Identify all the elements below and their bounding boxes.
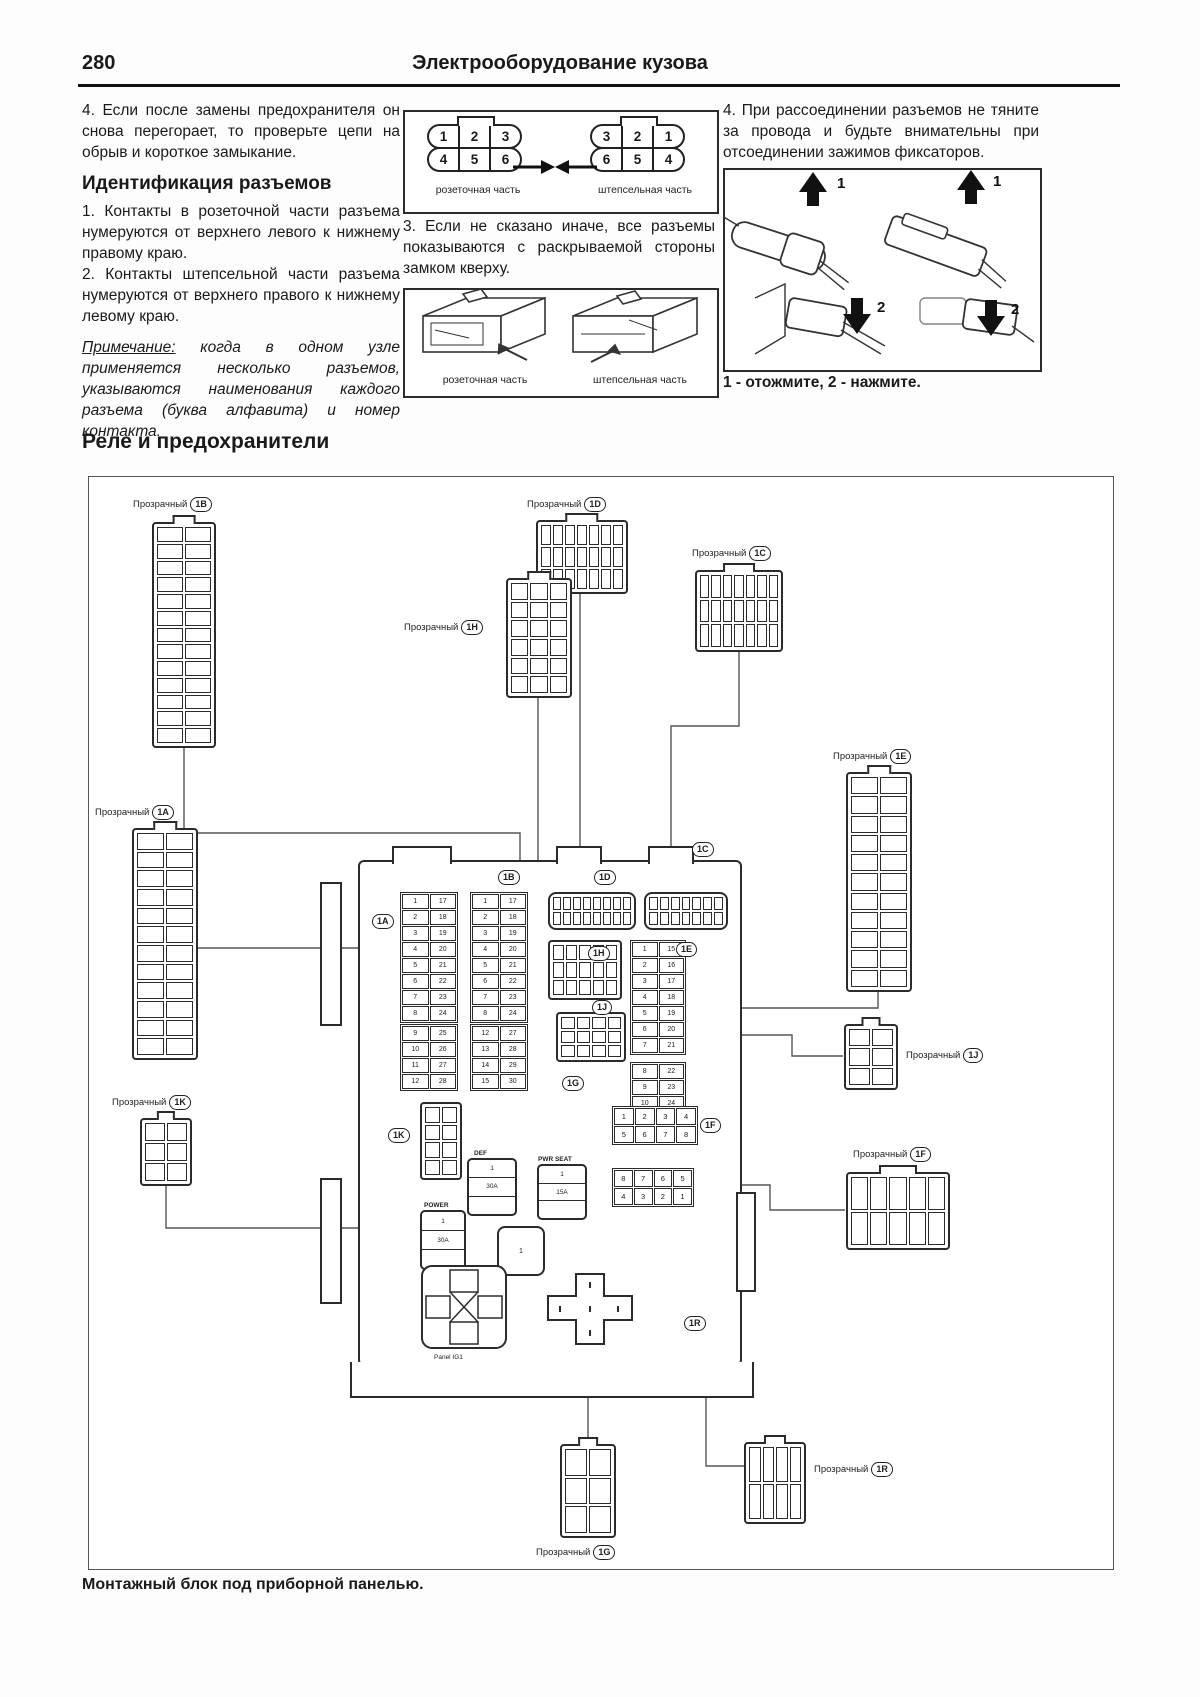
socket-oval-1j: 1J [592, 1000, 612, 1015]
fusebox-bracket-right [736, 1192, 756, 1292]
socket-oval-1k: 1K [388, 1128, 410, 1143]
socket-oval-1h: 1H [588, 946, 610, 961]
socket-oval-1g: 1G [562, 1076, 584, 1091]
plug-arrow-icon [555, 160, 597, 174]
socket-oval-1r: 1R [684, 1316, 706, 1331]
socket-row-1: 123 [427, 124, 522, 149]
relay-power-label: POWER [424, 1202, 449, 1209]
numbered-grid-r: 87654321 [612, 1168, 694, 1207]
connector-1d-label: Прозрачный1D [527, 497, 606, 512]
fusebox-socket-strip-1d [548, 892, 636, 930]
plug-view-caption: штепсельная часть [570, 374, 710, 386]
socket-oval-1e: 1E [676, 942, 697, 957]
connector-1b [152, 522, 216, 748]
fusebox-bracket-left-1 [320, 882, 342, 1026]
plug-row-2: 654 [590, 147, 685, 172]
socket-arrow-icon [513, 160, 555, 174]
socket-caption: розеточная часть [413, 184, 543, 196]
fuse-block-a1: 117218319420521622723824 [400, 892, 458, 1023]
fuse-block-a2: 925102611271228 [400, 1024, 458, 1091]
svg-text:1: 1 [993, 173, 1001, 190]
connector-1j-label: Прозрачный1J [906, 1048, 983, 1063]
connector-id-heading: Идентификация разъемов [82, 173, 400, 195]
panel-ig1-label: Panel IG1 [434, 1354, 463, 1361]
note-label: Примечание: [82, 339, 176, 356]
intro-item-4-left: 4. Если после замены предохранителя он с… [82, 100, 400, 163]
socket-oval-1d: 1D [594, 870, 616, 885]
relay-plus-block [546, 1272, 634, 1346]
fusebox-base-tray [350, 1362, 754, 1398]
intro-item-1: 1. Контакты в розеточной части разъема н… [82, 201, 400, 264]
connector-1k [140, 1118, 192, 1186]
connector-1g [560, 1444, 616, 1538]
plug-pin-table: 321 654 [590, 124, 685, 172]
fusebox-grid-1j [556, 1012, 626, 1062]
diagram-caption: Монтажный блок под приборной панелью. [82, 1576, 424, 1594]
fuse-block-c1: 115216317418519620721 [630, 940, 686, 1055]
intro-item-3: 3. Если не сказано иначе, все разъемы по… [403, 216, 715, 279]
connector-1j [844, 1024, 898, 1090]
connector-1h [506, 578, 572, 698]
relay-def-label: DEF [474, 1150, 487, 1157]
connector-1e-label: Прозрачный1E [833, 749, 911, 764]
connector-1r [744, 1442, 806, 1524]
intro-note: Примечание: когда в одном узле применяет… [82, 337, 400, 442]
relay-power: 130A [420, 1210, 466, 1270]
fusebox-tab-1 [392, 846, 452, 864]
disconnect-illustration-box: 1 1 2 [723, 168, 1042, 372]
connector-1b-label: Прозрачный1B [133, 497, 212, 512]
intro-column-left: 4. Если после замены предохранителя он с… [82, 100, 400, 442]
svg-text:2: 2 [877, 299, 885, 316]
connector-1k-label: Прозрачный1K [112, 1095, 191, 1110]
pin-diagram-box: 123 456 розеточная часть 321 654 штепсел… [403, 110, 719, 214]
fusebox-bracket-left-2 [320, 1178, 342, 1304]
connector-1e [846, 772, 912, 992]
connector-1f-label: Прозрачный1F [853, 1147, 931, 1162]
socket-oval-1f: 1F [700, 1118, 721, 1133]
plug-caption: штепсельная часть [580, 184, 710, 196]
connector-1f [846, 1172, 950, 1250]
connector-1a-label: Прозрачный1A [95, 805, 174, 820]
press-release-caption: 1 - отожмите, 2 - нажмите. [723, 374, 921, 392]
page-number: 280 [82, 52, 115, 75]
socket-oval-1b: 1B [498, 870, 520, 885]
fuse-block-b2: 1227132814291530 [470, 1024, 528, 1091]
connector-1c-label: Прозрачный1C [692, 546, 771, 561]
connector-views-sketch [405, 290, 713, 366]
connector-1c [695, 570, 783, 652]
connector-1r-label: Прозрачный1R [814, 1462, 893, 1477]
numbered-grid-f: 12345678 [612, 1106, 698, 1145]
connector-views-box: розеточная часть штепсельная часть [403, 288, 719, 398]
relay-def: 130A [467, 1158, 517, 1216]
connector-1g-label: Прозрачный1G [536, 1545, 615, 1560]
fusebox-grid-1h [548, 940, 622, 1000]
relay-cross-block [420, 1264, 510, 1352]
plug-tab [620, 116, 658, 126]
disconnect-sketch: 1 1 2 [725, 170, 1036, 366]
socket-view-caption: розеточная часть [415, 374, 555, 386]
relay-pwr-seat: 115A [537, 1164, 587, 1220]
relay-section-heading: Реле и предохранители [82, 430, 329, 454]
intro-item-2: 2. Контакты штепсельной части разъема ну… [82, 264, 400, 327]
intro-item-4-right: 4. При рассоединении разъемов не тяните … [723, 100, 1039, 163]
plug-row-1: 321 [590, 124, 685, 149]
fusebox-tab-3 [648, 846, 694, 864]
socket-oval-1a: 1A [372, 914, 394, 929]
fusebox-socket-strip-1c [644, 892, 728, 930]
connector-1h-label: Прозрачный1H [404, 620, 483, 635]
svg-text:1: 1 [837, 175, 845, 192]
socket-row-2: 456 [427, 147, 522, 172]
relay-pwr-seat-label: PWR SEAT [538, 1156, 572, 1163]
fusebox-tab-2 [556, 846, 602, 864]
header-rule [78, 84, 1120, 87]
svg-text:2: 2 [1011, 301, 1019, 318]
socket-tab [457, 116, 495, 126]
manual-page: 280 Электрооборудование кузова 4. Если п… [0, 0, 1200, 1697]
page-title: Электрооборудование кузова [250, 52, 870, 75]
fuse-block-b1: 117218319420521622723824 [470, 892, 528, 1023]
socket-pin-table: 123 456 [427, 124, 522, 172]
connector-1a [132, 828, 198, 1060]
socket-oval-1c: 1C [692, 842, 714, 857]
fusebox-grid-1k [420, 1102, 462, 1180]
